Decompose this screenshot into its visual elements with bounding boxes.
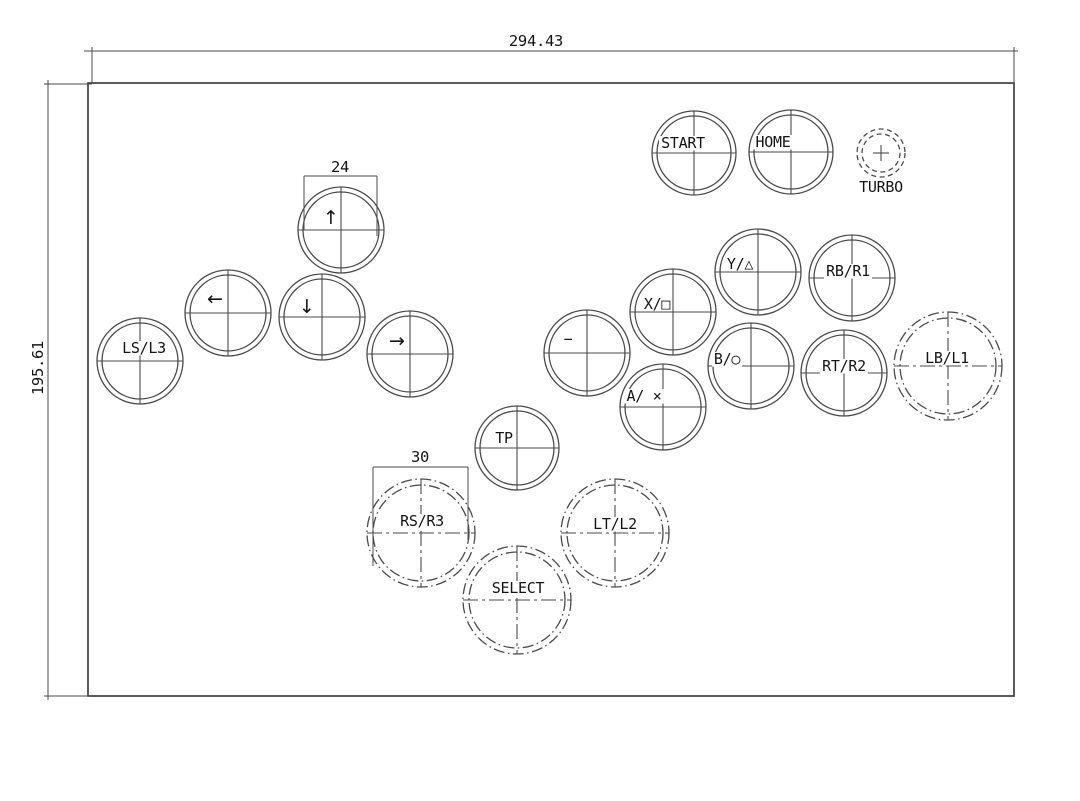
button-label-minus: −	[564, 330, 573, 348]
button-label-x-square: X/□	[644, 295, 670, 313]
button-label-tp: TP	[495, 429, 513, 447]
button-rb-r1: RB/R1	[809, 235, 895, 321]
button-rt-r2: RT/R2	[801, 330, 887, 416]
controller-layout-drawing: 294.43 195.61 24 30 STARTHOME↑←↓→LS/L3−X…	[0, 0, 1080, 801]
button-label-b-circle: B/○	[714, 350, 740, 368]
button-label-y-triangle: Y/△	[727, 255, 753, 273]
dimension-width-text: 294.43	[509, 32, 563, 50]
dimension-height-text: 195.61	[29, 341, 47, 395]
panel-outline	[88, 83, 1014, 696]
dimension-panel-width: 294.43	[84, 32, 1018, 83]
button-b-circle: B/○	[708, 323, 794, 409]
dimension-24-text: 24	[331, 158, 349, 176]
dimension-30-text: 30	[411, 448, 429, 466]
dimension-panel-height: 195.61	[29, 80, 92, 700]
button-label-rt-r2: RT/R2	[822, 357, 866, 375]
button-y-triangle: Y/△	[715, 229, 801, 315]
button-left: ←	[185, 270, 271, 356]
button-up: ↑	[298, 187, 384, 273]
button-right: →	[367, 311, 453, 397]
button-label-lb-l1: LB/L1	[925, 349, 969, 367]
button-label-home: HOME	[756, 133, 791, 151]
button-tp: TP	[475, 406, 559, 490]
button-minus: −	[544, 310, 630, 396]
button-label-rs-r3: RS/R3	[400, 512, 444, 530]
button-label-left: ←	[207, 288, 223, 310]
button-label-lt-l2: LT/L2	[593, 515, 637, 533]
button-label-select: SELECT	[492, 579, 545, 597]
cad-drawing-canvas: 294.43 195.61 24 30 STARTHOME↑←↓→LS/L3−X…	[0, 0, 1080, 801]
button-label-down: ↓	[299, 296, 315, 318]
button-label-ls-l3: LS/L3	[122, 339, 166, 357]
button-label-start: START	[661, 134, 705, 152]
button-label-right: →	[389, 330, 405, 352]
button-start: START	[652, 111, 736, 195]
button-label-turbo: TURBO	[859, 178, 903, 196]
button-home: HOME	[749, 110, 833, 194]
button-ls-l3: LS/L3	[97, 318, 183, 404]
button-label-rb-r1: RB/R1	[826, 262, 870, 280]
button-label-up: ↑	[323, 207, 339, 229]
button-label-a-cross: A/ ×	[627, 387, 662, 405]
button-down: ↓	[279, 274, 365, 360]
button-x-square: X/□	[630, 269, 716, 355]
button-a-cross: A/ ×	[620, 364, 706, 450]
